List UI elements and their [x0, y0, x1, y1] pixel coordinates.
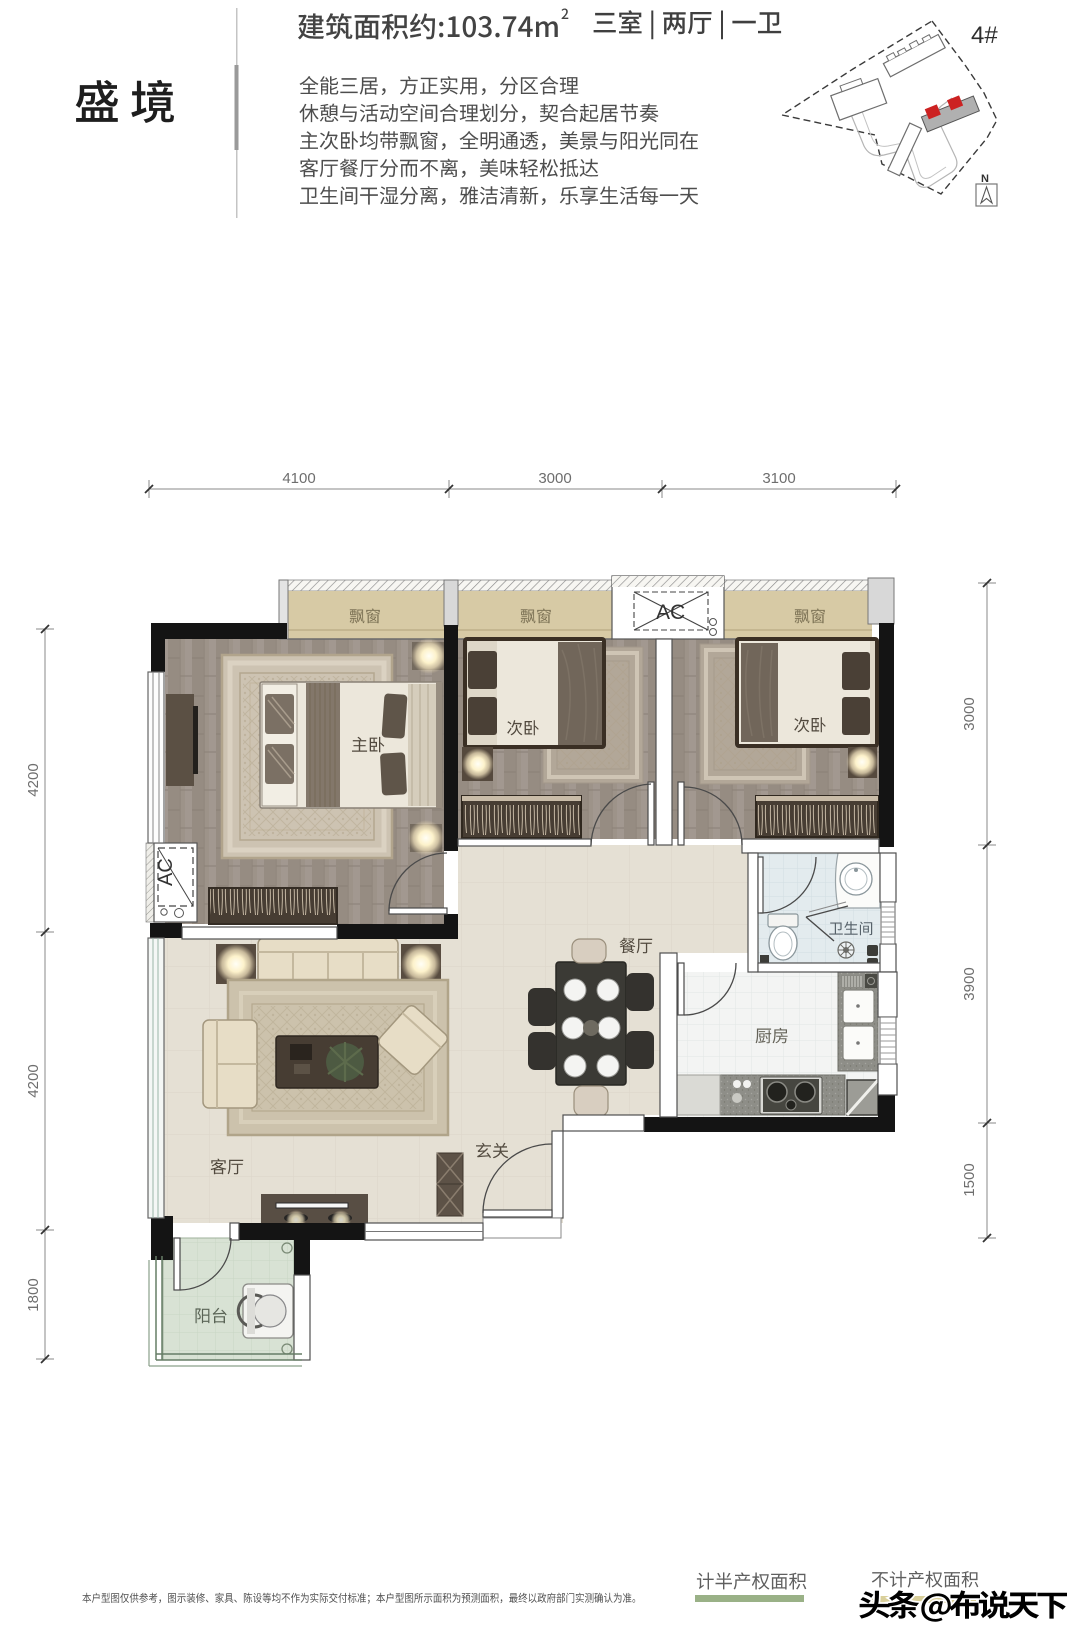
- svg-text:1800: 1800: [25, 1278, 42, 1311]
- svg-text:4200: 4200: [25, 763, 42, 796]
- svg-text:N: N: [981, 173, 989, 185]
- svg-text:4200: 4200: [25, 1064, 42, 1097]
- svg-text:1500: 1500: [961, 1163, 978, 1196]
- svg-text:4#: 4#: [971, 22, 998, 49]
- svg-text:4100: 4100: [282, 470, 315, 487]
- svg-text:AC: AC: [155, 858, 177, 886]
- svg-text:3000: 3000: [538, 470, 571, 487]
- svg-text:AC: AC: [656, 601, 685, 624]
- svg-text:3000: 3000: [961, 697, 978, 730]
- svg-text:3100: 3100: [762, 470, 795, 487]
- svg-text:3900: 3900: [961, 967, 978, 1000]
